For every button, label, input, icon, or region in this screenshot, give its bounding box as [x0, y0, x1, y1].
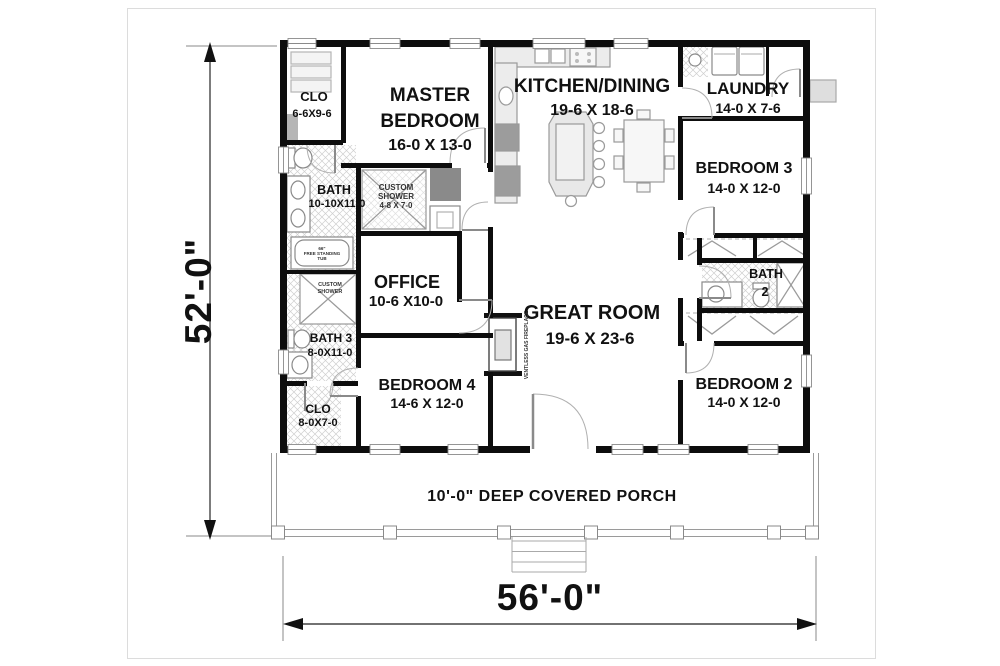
dims-clo-hall: 8-0X7-0 — [298, 417, 337, 429]
label-bath3: BATH 3 — [310, 331, 353, 345]
label-clo-master: CLO — [300, 89, 327, 104]
bath3-shower-note-1: CUSTOM — [318, 282, 342, 288]
floor-plan-drawing: CLO 6-6X9-6 MASTER BEDROOM 16-0 X 13-0 K… — [0, 0, 1000, 666]
label-kitchen: KITCHEN/DINING — [514, 76, 670, 97]
dims-clo-master: 6-6X9-6 — [292, 108, 331, 120]
tub-note-3: TUB — [317, 256, 327, 261]
linen-cabinet — [430, 168, 461, 201]
label-bath: BATH — [317, 183, 351, 197]
label-bath2: BATH — [749, 267, 783, 281]
dims-master: 16-0 X 13-0 — [388, 137, 472, 154]
dims-kitchen: 19-6 X 18-6 — [550, 102, 634, 119]
bath3-toilet — [288, 330, 310, 348]
label-bedroom2: BEDROOM 2 — [696, 376, 793, 393]
width-dimension: 56'-0" — [497, 577, 603, 618]
dims-shower: 4-8 X 7-0 — [380, 201, 413, 210]
label-great-room: GREAT ROOM — [524, 302, 660, 324]
dims-bedroom3: 14-0 X 12-0 — [707, 180, 780, 196]
fireplace — [484, 313, 522, 376]
master-vanity — [287, 176, 310, 232]
floor-plan-page: CLO 6-6X9-6 MASTER BEDROOM 16-0 X 13-0 K… — [0, 0, 1000, 666]
toilet — [288, 148, 312, 168]
dims-laundry: 14-0 X 7-6 — [715, 100, 781, 116]
label-porch: 10'-0" DEEP COVERED PORCH — [427, 488, 676, 505]
front-door — [530, 394, 596, 455]
label-master-2: BEDROOM — [380, 111, 479, 132]
porch-steps — [512, 537, 586, 572]
dims-office: 10-6 X10-0 — [369, 293, 443, 310]
label-bedroom4: BEDROOM 4 — [379, 377, 476, 394]
side-stoop — [810, 80, 836, 102]
bath3-shower-note-2: SHOWER — [318, 289, 343, 295]
fireplace-note: VENTLESS GAS FIREPLACE — [524, 310, 530, 379]
label-bedroom3: BEDROOM 3 — [696, 160, 793, 177]
label-bath2-num: 2 — [762, 285, 769, 299]
label-master-1: MASTER — [390, 85, 471, 106]
kitchen-island — [549, 112, 605, 207]
dims-bath3: 8-0X11-0 — [308, 347, 353, 359]
label-laundry: LAUNDRY — [707, 79, 790, 98]
porch — [271, 453, 819, 572]
dining-table — [614, 110, 674, 192]
dims-bedroom2: 14-0 X 12-0 — [707, 394, 780, 410]
dims-bedroom4: 14-6 X 12-0 — [390, 395, 463, 411]
label-shower-2: SHOWER — [378, 192, 414, 201]
height-dimension: 52'-0" — [178, 238, 219, 344]
dims-bath: 10-10X11-0 — [309, 198, 366, 210]
label-office: OFFICE — [374, 272, 440, 292]
label-clo-hall: CLO — [305, 402, 330, 416]
label-shower-1: CUSTOM — [379, 183, 414, 192]
dims-great-room: 19-6 X 23-6 — [546, 329, 635, 348]
porch-posts — [272, 526, 819, 539]
hvac-closet — [430, 206, 460, 233]
